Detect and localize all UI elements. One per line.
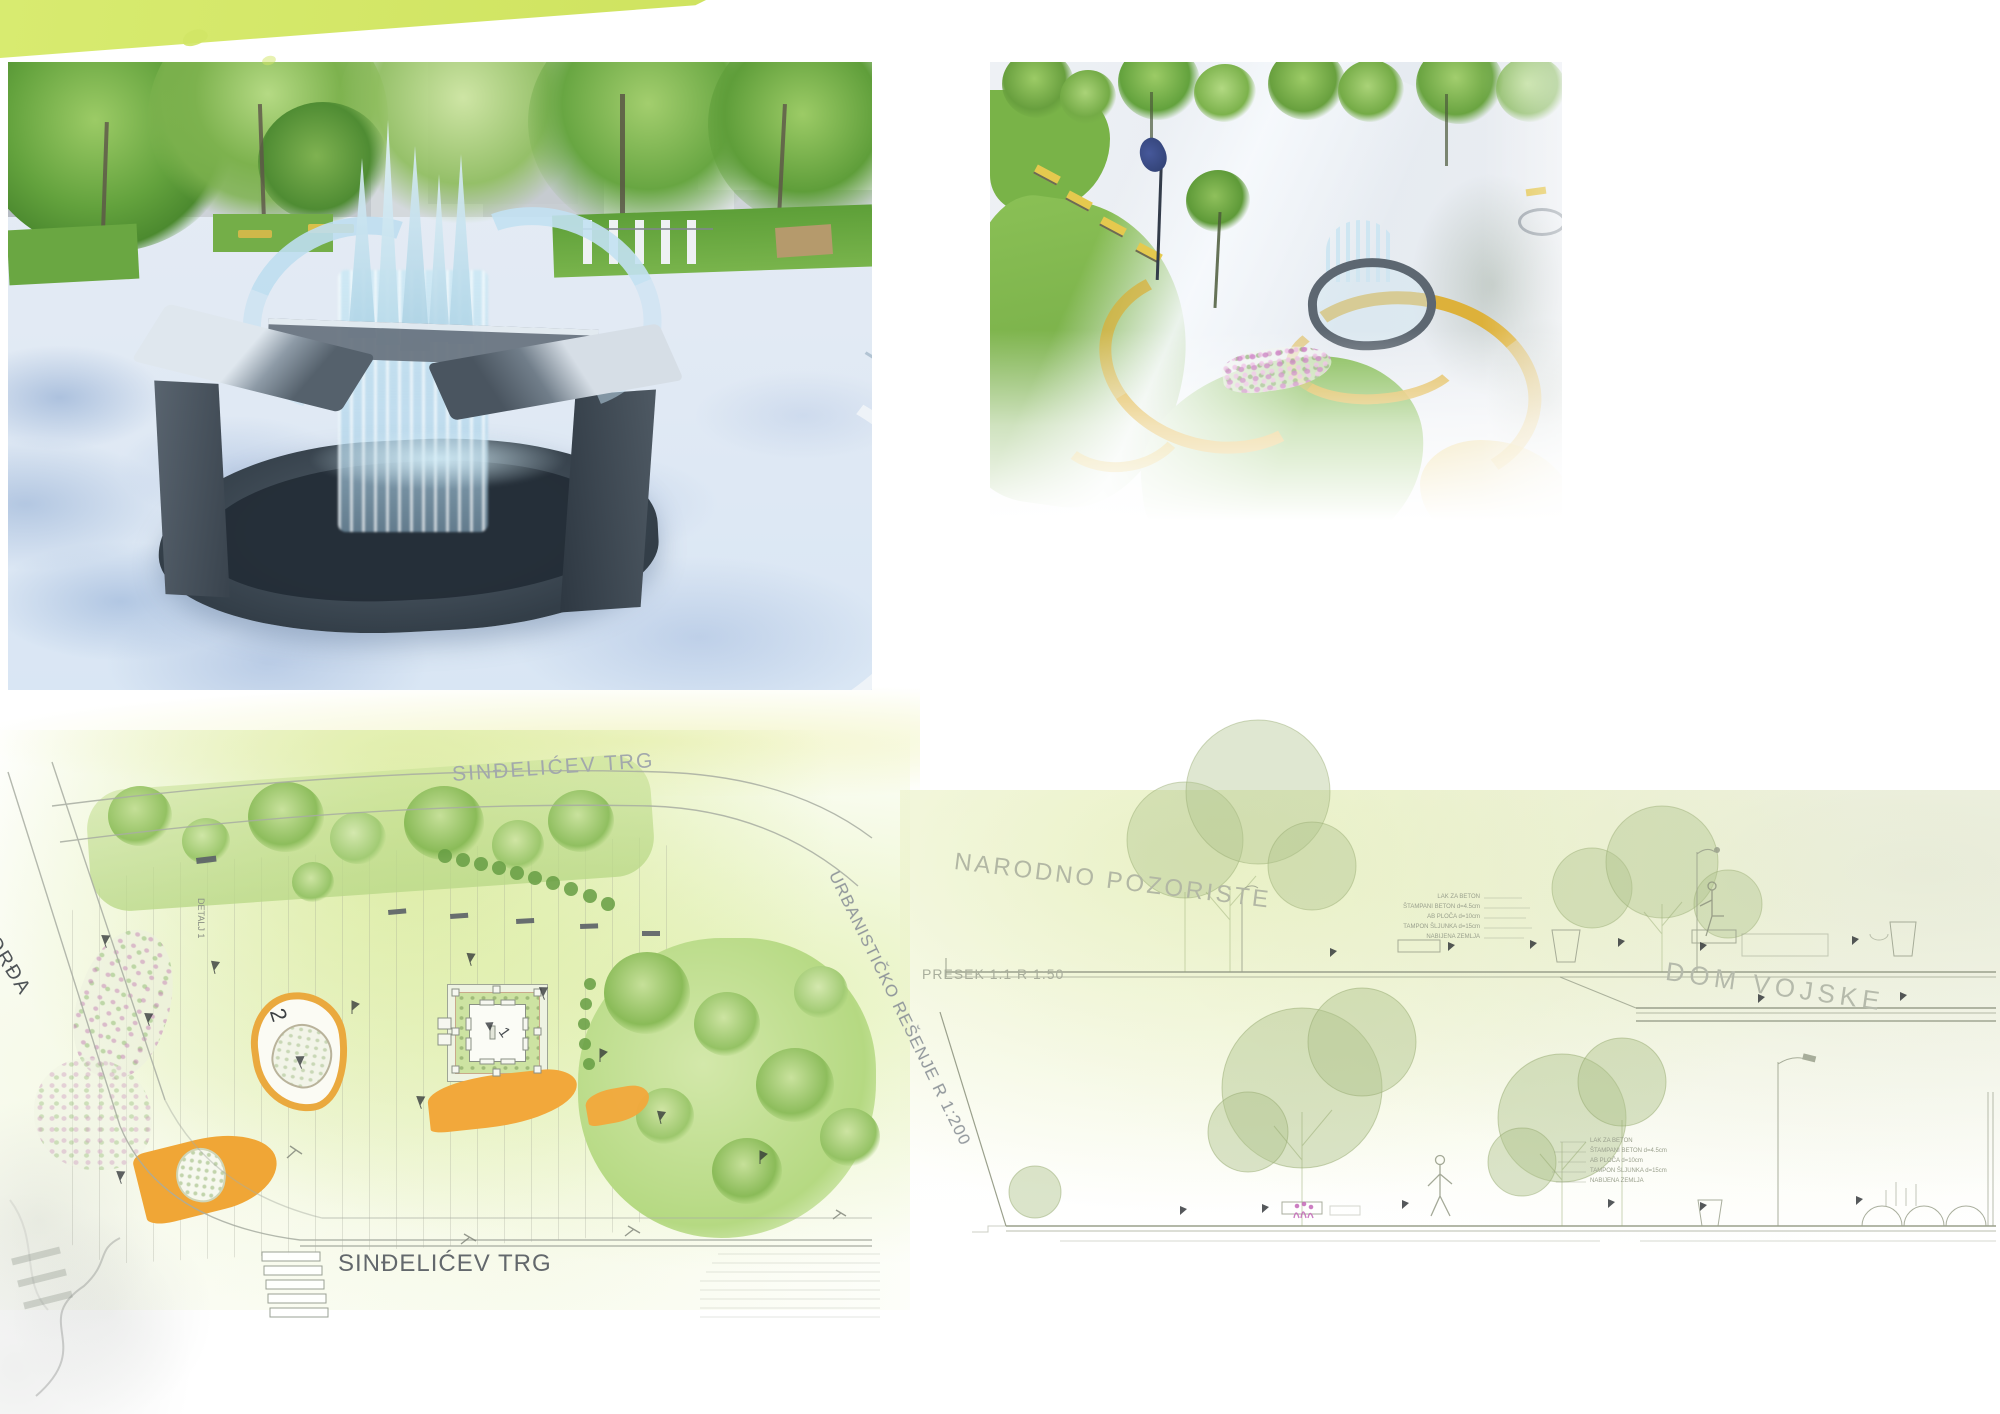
- section-upper-leaders: [1484, 898, 1532, 938]
- plan-hedge: [438, 849, 615, 1070]
- section-lower-trees: [1009, 988, 1666, 1226]
- tree-trunk: [620, 94, 625, 226]
- section-lower-ground: [940, 1012, 1996, 1241]
- plan-crosswalk-left: [12, 1250, 72, 1306]
- plan-spot-markers: [102, 933, 767, 1184]
- layer-line: TAMPON ŠLJUNKA d=15cm: [1378, 922, 1480, 932]
- water-splash: [308, 428, 568, 490]
- layer-line: TAMPON ŠLJUNKA d=15cm: [1590, 1166, 1710, 1176]
- layer-line: NABIJENA ZEMLJA: [1378, 932, 1480, 942]
- plan-survey-marks: [287, 1146, 846, 1244]
- plan-street-bottom-label: SINĐELIĆEV TRG: [338, 1250, 552, 1278]
- plan-street-lines: [8, 762, 872, 1246]
- fountain-leg: [154, 380, 230, 597]
- section-lower-flowers: [1294, 1202, 1313, 1218]
- section-lower-person: [1428, 1156, 1452, 1217]
- presentation-board: SINĐELIĆEV TRG ĐORĐA URBANISTIČKO REŠENJ…: [0, 0, 2000, 1414]
- layer-line: AB PLOČA d=10cm: [1590, 1156, 1710, 1166]
- render-fade-overlay: [990, 62, 1562, 540]
- layer-line: ŠTAMPANI BETON d=4.5cm: [1590, 1146, 1710, 1156]
- pavement-layers-upper: LAK ZA BETON ŠTAMPANI BETON d=4.5cm AB P…: [1378, 892, 1480, 942]
- pavement-layers-lower: LAK ZA BETON ŠTAMPANI BETON d=4.5cm AB P…: [1590, 1136, 1710, 1186]
- fountain-leg: [560, 389, 656, 612]
- layer-line: ŠTAMPANI BETON d=4.5cm: [1378, 902, 1480, 912]
- plan-fountain-detail: [438, 986, 541, 1076]
- plan-detail-label: DETALJ 1: [196, 898, 206, 938]
- park-path-aerial-render: [990, 62, 1562, 540]
- tree-canopy: [258, 102, 388, 222]
- layer-line: LAK ZA BETON: [1378, 892, 1480, 902]
- layer-line: LAK ZA BETON: [1590, 1136, 1710, 1146]
- layer-line: AB PLOČA d=10cm: [1378, 912, 1480, 922]
- layer-line: NABIJENA ZEMLJA: [1590, 1176, 1710, 1186]
- section-scale-label: PRESEK 1:1 R 1:50: [922, 966, 1064, 982]
- fountain-plaza-render: [8, 62, 872, 690]
- park-bench: [238, 230, 272, 238]
- plan-bottom-paving: [700, 1254, 880, 1317]
- plan-crosswalk: [262, 1252, 328, 1317]
